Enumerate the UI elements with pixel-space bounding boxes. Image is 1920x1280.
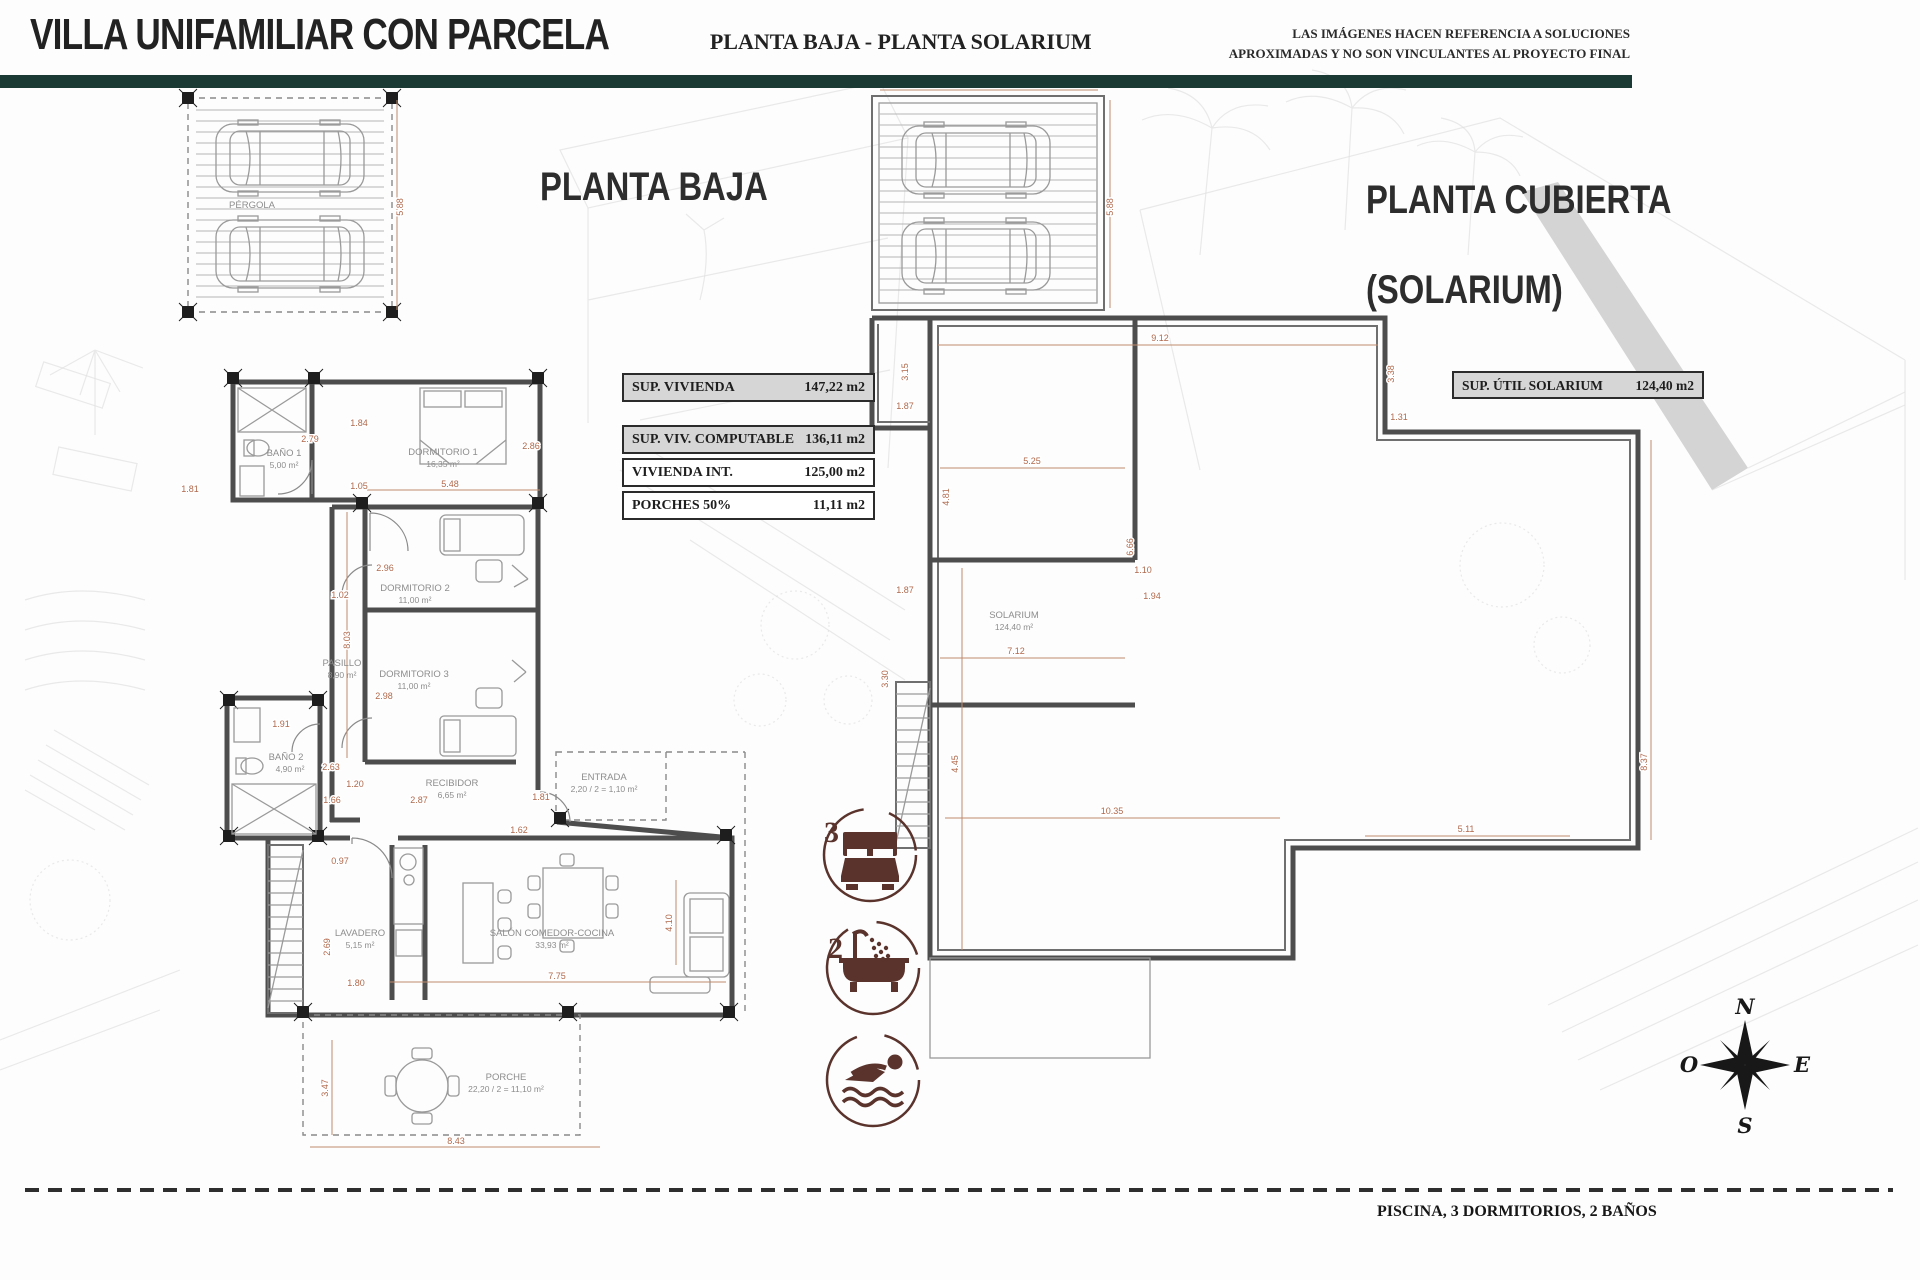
planta-baja-drawing: PÉRGOLA BAÑO 1 5,00 m² DORMITORIO 1 16,3… [179,89,745,1147]
swimmer-icon [843,1055,903,1106]
solarium-area-value: 124,40 m2 [1636,378,1695,394]
room-area: 124,40 m² [995,622,1033,632]
table-row: SUP. VIV. COMPUTABLE 136,11 m2 [622,425,875,454]
room-label: DORMITORIO 2 [380,583,450,594]
dim-label: 7.75 [548,971,566,981]
room-label: DORMITORIO 3 [379,669,449,680]
dim-label: 1.80 [347,978,365,988]
dim-label: 5.88 [1105,198,1115,216]
dim-label: 6.66 [1125,538,1135,556]
compass-north: N [1734,994,1755,1019]
dim-label: 2.87 [410,795,428,805]
room-label: ENTRADA [581,772,627,783]
table-row: PORCHES 50% 11,11 m2 [622,491,875,520]
porch-table [385,1048,459,1124]
sofa [650,893,729,993]
dim-label: 3.38 [1386,365,1396,383]
page-subtitle: PLANTA BAJA - PLANTA SOLARIUM [710,29,1092,55]
dim-label: 1.81 [181,484,199,494]
area-row-value: 125,00 m2 [804,465,865,481]
stairs [896,682,930,848]
room-area: 5,15 m² [346,940,375,950]
dim-label: 1.05 [350,481,368,491]
page-title: VILLA UNIFAMILIAR CON PARCELA [30,10,609,60]
room-area: 2,20 / 2 = 1,10 m² [571,784,638,794]
dim-label: 3.47 [320,1079,330,1097]
dim-label: 1.81 [532,792,550,802]
dim-label: 2.96 [376,563,394,573]
room-label: PÉRGOLA [229,200,276,211]
footer-dashed-line [25,1188,1893,1192]
area-row-label: SUP. VIV. COMPUTABLE [632,432,794,448]
area-row-label: PORCHES 50% [632,498,731,514]
room-area: 6,65 m² [438,790,467,800]
dim-label: 8.37 [1639,753,1649,771]
area-row-label: VIVIENDA INT. [632,465,733,481]
dim-label: 2.79 [301,434,319,444]
kitchen [394,848,511,963]
compass-west: O [1680,1052,1699,1077]
room-label: DORMITORIO 1 [408,447,478,458]
plan-sheet: PÉRGOLA BAÑO 1 5,00 m² DORMITORIO 1 16,3… [0,0,1920,1280]
disclaimer-line: LAS IMÁGENES HACEN REFERENCIA A SOLUCION… [1229,24,1630,44]
dim-label: 2.86 [522,441,540,451]
planta-cubierta-title-line1: PLANTA CUBIERTA [1366,178,1672,222]
bathtub-icon [839,931,909,992]
bedroom-count: 3 [824,816,839,849]
dim-label: 3.30 [880,670,890,688]
dim-label: 5.48 [441,479,459,489]
dim-label: 3.15 [900,363,910,381]
dim-label: 8.43 [447,1136,465,1146]
bed-single [440,515,528,587]
dim-label: 4.45 [950,755,960,773]
header: VILLA UNIFAMILIAR CON PARCELA PLANTA BAJ… [30,10,1092,60]
car-top-view [216,120,364,196]
planta-cubierta-title: PLANTA CUBIERTA (SOLARIUM) [1366,178,1672,312]
room-area: 22,20 / 2 = 11,10 m² [468,1084,544,1094]
planta-baja-title: PLANTA BAJA [540,165,768,210]
dim-label: 5.11 [1458,824,1475,834]
dim-label: 1.20 [346,779,364,789]
dim-label: 5.88 [395,198,405,216]
table-row: VIVIENDA INT. 125,00 m2 [622,458,875,487]
dim-label: 5.25 [1023,456,1041,466]
room-area: 11,00 m² [399,595,432,605]
pergola-slats [196,110,384,297]
dim-label: 0.97 [331,856,349,866]
solarium-area-label: SUP. ÚTIL SOLARIUM [1462,378,1603,394]
area-row-label: SUP. VIVIENDA [632,380,735,396]
dim-label: 1.66 [323,795,341,805]
dim-label: 1.94 [1143,591,1161,601]
dim-label: 1.84 [350,418,368,428]
bath1-fixtures [238,388,306,496]
dim-label: 1.10 [1134,565,1152,575]
bed-icon [841,832,899,890]
area-table: SUP. VIVIENDA 147,22 m2 SUP. VIV. COMPUT… [622,373,875,520]
dim-label: 1.91 [272,719,290,729]
area-row-value: 11,11 m2 [813,498,865,514]
dim-label: 2.63 [322,762,340,772]
dim-label: 2.69 [322,938,332,956]
dim-label: 7.12 [1007,646,1025,656]
room-area: 4,90 m² [276,764,305,774]
room-label: PORCHE [486,1072,527,1083]
room-label: SALÓN COMEDOR-COCINA [490,928,615,939]
dim-label: 1.02 [331,590,349,600]
room-label: BAÑO 1 [267,448,302,459]
planta-cubierta-title-line2: (SOLARIUM) [1366,268,1563,312]
compass-south: S [1737,1113,1752,1138]
room-label: BAÑO 2 [269,752,304,763]
room-area: 11,00 m² [398,681,431,691]
room-label: LAVADERO [335,928,385,939]
table-row: SUP. VIVIENDA 147,22 m2 [622,373,875,402]
room-area: 5,00 m² [270,460,299,470]
room-label: RECIBIDOR [426,778,479,789]
room-label: SOLARIUM [989,610,1039,621]
dim-label: 1.31 [1390,412,1408,422]
room-area: 16,35 m² [426,459,460,469]
area-row-value: 136,11 m2 [805,432,865,448]
disclaimer-line: APROXIMADAS Y NO SON VINCULANTES AL PROY… [1229,44,1630,64]
feature-badges: 3 2 [824,809,919,1126]
dim-label: 1.87 [896,401,914,411]
compass-rose: N S E O [1680,994,1811,1138]
dim-label: 9.12 [1151,333,1169,343]
disclaimer-note: LAS IMÁGENES HACEN REFERENCIA A SOLUCION… [1229,24,1630,63]
car-top-view [216,216,364,292]
dim-label: 1.62 [510,825,528,835]
stairs [268,845,303,1013]
dim-label: 8.03 [342,631,352,649]
dim-label: 4.10 [664,914,674,932]
solarium-area-box: SUP. ÚTIL SOLARIUM 124,40 m2 [1452,371,1704,399]
footer-summary: PISCINA, 3 DORMITORIOS, 2 BAÑOS [1377,1203,1657,1221]
dim-label: 2.98 [375,691,393,701]
dim-label: 1.87 [896,585,914,595]
dim-label: 10.35 [1101,806,1124,816]
compass-east: E [1793,1052,1811,1077]
room-label: PASILLO [323,658,362,669]
room-area: 33,93 m² [535,940,569,950]
area-row-value: 147,22 m2 [804,380,865,396]
accent-bar [0,75,1632,88]
bed-single [440,660,526,756]
room-area: 8,90 m² [328,670,357,680]
dim-label: 4.81 [941,488,951,506]
